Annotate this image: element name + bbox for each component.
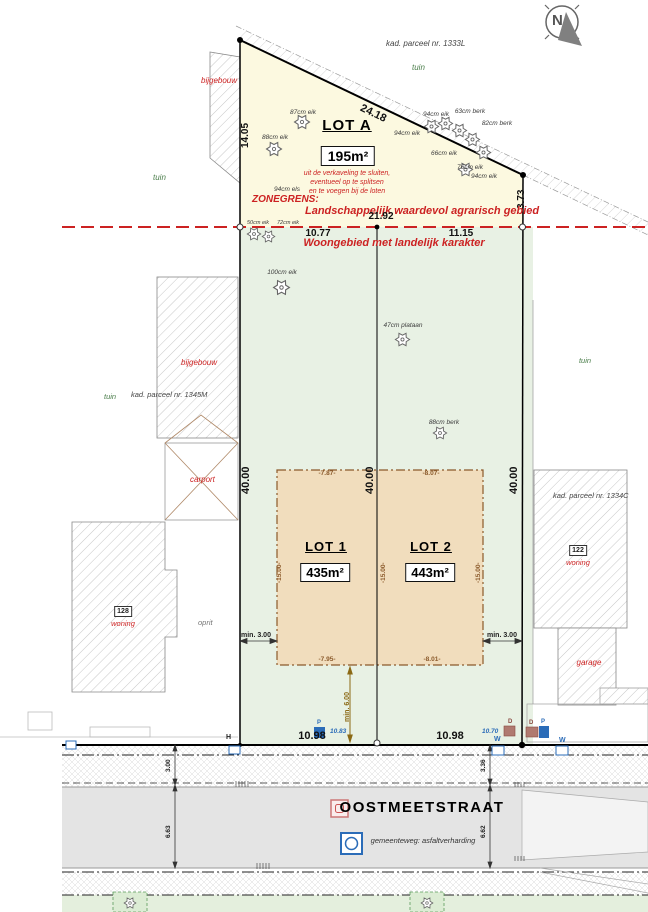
lot-a-note-1: uit de verkaveling te sluiten,: [304, 170, 390, 177]
w-marker-1: [492, 746, 504, 755]
tree-label-88-eik: 88cm eik: [262, 135, 288, 142]
zonegrens-label: ZONEGRENS:: [252, 195, 319, 205]
env-dim-top-2: -8.07-: [423, 471, 440, 478]
north-arrow-icon: [545, 5, 582, 46]
w-marker-1-label: W: [494, 736, 501, 743]
street-name: OOSTMEETSTRAAT: [340, 800, 505, 815]
w-marker-2: [556, 746, 568, 755]
h-marker-label: H: [226, 734, 231, 741]
kad-parcel-left-label: kad. parceel nr. 1345M: [131, 391, 207, 399]
env-dim-bottom-2: -8.01-: [424, 657, 441, 664]
green-strip-bottom: [62, 895, 648, 912]
tree-label-87-eik: 87cm eik: [290, 110, 316, 117]
site-plan-drawing: [0, 0, 648, 912]
woning-left-label: woning: [111, 620, 135, 628]
tree-label-94-eik-b: 94cm eik: [394, 131, 420, 138]
env-dim-side-mid: -15.00-: [381, 562, 388, 583]
lot-a-note-2: eventueel op te splitsen: [310, 179, 384, 186]
tree-label-94-els: 94cm els: [274, 187, 300, 194]
dim-verge-right: 3.36: [481, 759, 488, 772]
p-marker-left-label: P: [317, 720, 321, 726]
tuin-right-label: tuin: [579, 357, 591, 365]
carport-label: carport: [190, 476, 215, 484]
env-dim-bottom-1: -7.95-: [319, 657, 336, 664]
env-dim-side-left: -15.00-: [277, 562, 284, 583]
lot-2-area: 443m²: [405, 563, 455, 582]
dim-14-05: 14.05: [241, 123, 251, 148]
level-left: 10.83: [330, 729, 346, 736]
dim-verge-left: 3.00: [166, 759, 173, 772]
inspection-pit-icon: [341, 833, 362, 854]
d-marker-1: [504, 726, 515, 736]
env-dim-side-right: -15.00-: [476, 562, 483, 583]
env-dim-top-1: -7.87-: [319, 471, 336, 478]
left-frontage-lines: [0, 712, 238, 737]
tuin-left2-label: tuin: [104, 393, 116, 401]
tree-label-72-eik: 72cm eik: [277, 221, 299, 227]
lot-a-area: 195m²: [321, 146, 375, 166]
tree-label-88-berk: 88cm berk: [429, 420, 459, 427]
tree-label-76-eik: 76cm eik: [457, 165, 483, 172]
house-number-122: 122: [569, 545, 587, 556]
lot-a-note-3: en te voegen bij de loten: [309, 188, 385, 195]
dim-40-left: 40.00: [241, 466, 252, 494]
lot-2-title: LOT 2: [410, 540, 452, 553]
boundary-right: [522, 175, 523, 745]
p-marker-right-label: P: [541, 719, 545, 725]
dim-21-92: 21.92: [368, 212, 393, 222]
north-letter: N: [552, 13, 563, 28]
bijgebouw-top-label: bijgebouw: [201, 77, 237, 85]
dim-road-right: 6.62: [481, 825, 488, 838]
min-3-right: min. 3.00: [487, 632, 517, 639]
lot-1-title: LOT 1: [305, 540, 347, 553]
min-3-left: min. 3.00: [241, 632, 271, 639]
dim-front-left: 10.98: [298, 731, 326, 742]
oprit-label: oprit: [198, 619, 213, 627]
lot-a-title: LOT A: [322, 118, 371, 133]
p-marker-right: [539, 726, 549, 738]
tree-label-82-berk: 82cm berk: [482, 121, 512, 128]
zone-south-label: Woongebied met landelijk karakter: [303, 238, 484, 249]
house-number-128: 128: [114, 606, 132, 617]
side-road: [522, 790, 648, 860]
tree-label-47-plataan: 47cm plataan: [383, 323, 422, 330]
tree-label-94-eik-a: 94cm eik: [423, 112, 449, 119]
dim-road-left: 6.63: [166, 825, 173, 838]
tuin-left-label: tuin: [153, 174, 166, 182]
kad-parcel-top-label: kad. parceel nr. 1333L: [386, 40, 465, 48]
far-verge-strip: [62, 872, 648, 895]
zone-north-label: Landschappelijk waardevol agrarisch gebi…: [305, 206, 539, 217]
level-right: 10.70: [482, 729, 498, 736]
woning-right-label: woning: [566, 559, 590, 567]
w-marker-2-label: W: [559, 737, 566, 744]
outbuilding-top: [210, 52, 240, 183]
street-surface-label: gemeenteweg: asfaltverharding: [371, 837, 476, 845]
h-marker-box: [229, 746, 240, 754]
min-6-front: min. 6.00: [344, 692, 351, 722]
tree-label-100-eik: 100cm eik: [267, 270, 297, 277]
dim-front-right: 10.98: [436, 731, 464, 742]
tree-label-63-berk: 63cm berk: [455, 109, 485, 116]
d-marker-1-label: D: [508, 719, 512, 725]
garage-label: garage: [577, 659, 602, 667]
w-marker-far-left: [66, 741, 76, 749]
kad-parcel-right-label: kad. parceel nr. 1334C: [553, 492, 629, 500]
bijgebouw-left-label: bijgebouw: [181, 359, 217, 367]
building-right-front: [600, 688, 648, 704]
d-marker-2-label: D: [529, 720, 533, 726]
cadastral-site-plan: kad. parceel nr. 1333L tuin bijgebouw N …: [0, 0, 648, 912]
tree-label-66-eik: 66cm eik: [431, 151, 457, 158]
dim-40-mid: 40.00: [365, 466, 376, 494]
tuin-top-label: tuin: [412, 64, 425, 72]
tree-label-94-eik-c: 94cm eik: [471, 174, 497, 181]
lot-1-area: 435m²: [300, 563, 350, 582]
d-marker-2: [526, 727, 538, 737]
tree-label-50-eik: 50cm eik: [247, 221, 269, 227]
dim-40-right: 40.00: [509, 466, 520, 494]
